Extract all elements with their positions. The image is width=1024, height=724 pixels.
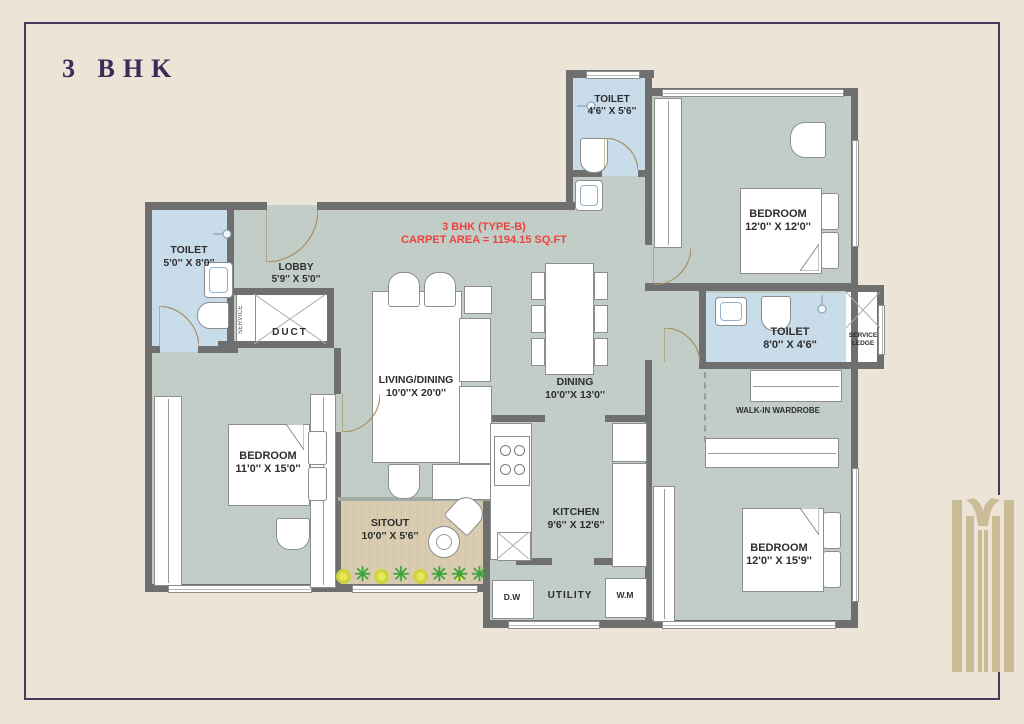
room-dim: 9'6'' X 12'6'' (534, 519, 618, 532)
wall (566, 70, 573, 210)
room-label-toilet-right: TOILET 8'0'' X 4'6'' (748, 326, 832, 352)
wall (317, 202, 575, 210)
plant-icon: ✳ (431, 566, 448, 584)
room-label-bedroom-bottom-right: BEDROOM 12'0'' X 15'9'' (732, 542, 826, 568)
room-dim: 8'0'' X 4'6'' (748, 339, 832, 352)
door-arc (266, 210, 318, 262)
burner-icon (514, 445, 525, 456)
armchair (388, 272, 420, 307)
room-name: KITCHEN (534, 506, 618, 519)
plant-icon: ✳ (354, 566, 371, 584)
armchair (388, 464, 420, 499)
sink-cross-icon (497, 532, 529, 559)
window (168, 585, 312, 593)
burner-icon (514, 464, 525, 475)
plant-icon (374, 569, 389, 584)
door-arc (159, 306, 199, 348)
burner-icon (500, 464, 511, 475)
frame-top (24, 22, 1000, 24)
window (662, 621, 836, 629)
sofa-corner (432, 464, 492, 500)
shower-icon (212, 226, 234, 242)
appliance-label-dw: D.W (492, 592, 532, 602)
room-label-duct: DUCT (254, 327, 326, 339)
room-dim: 5'9'' X 5'0'' (266, 274, 326, 286)
room-label-lobby: LOBBY 5'9'' X 5'0'' (266, 262, 326, 286)
wall (145, 202, 152, 592)
room-dim: 12'0'' X 15'9'' (732, 555, 826, 568)
room-name: TOILET (154, 244, 224, 257)
plant-icon (413, 569, 428, 584)
room-name: DINING (536, 376, 614, 389)
sofa (459, 318, 491, 382)
window (852, 140, 859, 247)
room-label-dining: DINING 10'0''X 13'0'' (536, 376, 614, 401)
room-label-toilet-top: TOILET 4'6'' X 5'6'' (574, 94, 650, 118)
carpet-area-label: CARPET AREA = 1194.15 SQ.FT (398, 234, 570, 247)
room-name: TOILET (574, 94, 650, 106)
wardrobe (154, 396, 182, 586)
window (852, 468, 859, 602)
wall (327, 288, 334, 348)
dining-table (545, 263, 594, 375)
dining-chair (594, 338, 608, 366)
window (586, 71, 640, 79)
wardrobe (653, 486, 675, 622)
planter-row: ✳ ✳ ✳ ✳ ✳ (336, 550, 488, 584)
wardrobe-shelf (705, 438, 839, 468)
bed-fold (286, 424, 304, 450)
wall (483, 415, 545, 422)
room-dim: 12'0'' X 12'0'' (732, 221, 824, 234)
wall (699, 291, 706, 369)
room-label-sitout: SITOUT 10'0'' X 5'6'' (348, 517, 432, 542)
dining-chair (531, 338, 545, 366)
window (662, 89, 844, 97)
plant-icon: ✳ (451, 566, 468, 584)
door-arc (604, 138, 638, 170)
room-name: SERVICE (845, 332, 881, 340)
room-dim: 10'0''X 20'0'' (370, 387, 462, 400)
room-name: SITOUT (348, 517, 432, 530)
room-name: TOILET (748, 326, 832, 339)
room-label-service-strip: SERVICE (238, 297, 252, 341)
burner-icon (500, 445, 511, 456)
wall (846, 362, 884, 369)
window (508, 621, 600, 629)
room-label-service-ledge: SERVICE LEDGE (845, 332, 881, 348)
room-name: LIVING/DINING (370, 374, 462, 387)
room-name: DUCT (254, 327, 326, 339)
wall (145, 346, 160, 353)
room-label-living-dining: LIVING/DINING 10'0''X 20'0'' (370, 374, 462, 399)
room-dim: 10'0'' X 5'6'' (348, 530, 432, 543)
room-dim: 10'0''X 13'0'' (536, 389, 614, 402)
appliance-name: W.M (605, 590, 645, 600)
plant-icon (336, 569, 351, 584)
plant-icon: ✳ (393, 566, 410, 584)
wash-basin (575, 180, 603, 211)
frame-right-upper (998, 22, 1000, 495)
frame-left (24, 22, 26, 700)
sofa (459, 386, 492, 464)
room-name: LOBBY (266, 262, 326, 274)
room-name: BEDROOM (732, 542, 826, 555)
dining-chair (594, 272, 608, 300)
wall (699, 362, 846, 369)
bed-fold (800, 244, 819, 271)
wall (145, 202, 267, 210)
room-dim: 5'0'' X 8'0'' (154, 257, 224, 270)
door-arc (664, 328, 700, 362)
floor-plan-page: 3 BHK (0, 0, 1024, 724)
room-dim: 4'6'' X 5'6'' (574, 106, 650, 118)
builder-logo-icon (952, 490, 1014, 672)
plan-type-label: 3 BHK (TYPE-B) (398, 221, 570, 234)
dining-chair (594, 305, 608, 333)
appliance-label-wm: W.M (605, 590, 645, 600)
room-label-walk-in-wardrobe: WALK-IN WARDROBE (714, 406, 842, 416)
bed-fold (800, 508, 819, 535)
dining-chair (531, 272, 545, 300)
wall (334, 348, 341, 394)
side-table (464, 286, 492, 314)
wardrobe (654, 98, 682, 248)
appliance-name: D.W (492, 592, 532, 602)
toilet-wc (197, 302, 229, 329)
hob (494, 436, 530, 486)
page-title: 3 BHK (62, 54, 179, 84)
room-name: WALK-IN WARDROBE (714, 406, 842, 416)
wall (605, 415, 647, 422)
armchair (424, 272, 456, 307)
wall (846, 285, 884, 292)
wash-basin (715, 297, 747, 326)
wardrobe-rail (704, 372, 706, 442)
room-label-kitchen: KITCHEN 9'6'' X 12'6'' (534, 506, 618, 531)
bedroom-chair (790, 122, 826, 158)
room-label-toilet-left: TOILET 5'0'' X 8'0'' (154, 244, 224, 269)
pillow (821, 232, 839, 269)
bedroom-chair (276, 518, 310, 550)
wardrobe-shelf (750, 370, 842, 402)
room-name: BEDROOM (732, 208, 824, 221)
window (352, 585, 478, 593)
room-name: BEDROOM (222, 450, 314, 463)
room-label-utility: UTILITY (528, 590, 612, 602)
ledge-cross-icon (846, 292, 880, 328)
frame-right-lower (998, 672, 1000, 700)
frame-bottom (24, 698, 1000, 700)
room-name: LEDGE (845, 340, 881, 348)
plant-icon: ✳ (471, 566, 488, 584)
door-arc (342, 394, 380, 432)
room-dim: 11'0'' X 15'0'' (222, 463, 314, 476)
dining-chair (531, 305, 545, 333)
room-label-bedroom-top-right: BEDROOM 12'0'' X 12'0'' (732, 208, 824, 234)
room-name: UTILITY (528, 590, 612, 602)
wall (638, 170, 652, 177)
shower-icon (814, 294, 830, 316)
door-arc (653, 247, 691, 285)
room-label-bedroom-left: BEDROOM 11'0'' X 15'0'' (222, 450, 314, 476)
plan-annotation: 3 BHK (TYPE-B) CARPET AREA = 1194.15 SQ.… (398, 221, 570, 247)
refrigerator (612, 423, 647, 462)
